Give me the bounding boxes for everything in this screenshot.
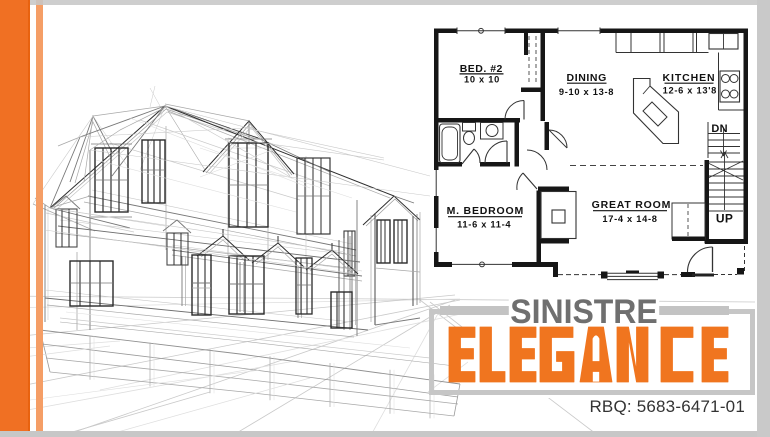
svg-text:DINING: DINING: [567, 72, 607, 84]
svg-text:17-4 x 14-8: 17-4 x 14-8: [602, 214, 657, 224]
svg-text:11-6 x 11-4: 11-6 x 11-4: [457, 220, 511, 230]
svg-text:GREAT ROOM: GREAT ROOM: [592, 199, 672, 211]
svg-text:12-6 x 13'8: 12-6 x 13'8: [663, 86, 717, 96]
svg-text:KITCHEN: KITCHEN: [663, 72, 716, 84]
svg-text:DN: DN: [711, 123, 728, 135]
svg-text:9-10 x 13-8: 9-10 x 13-8: [559, 87, 614, 97]
svg-text:UP: UP: [716, 212, 733, 226]
svg-text:M. BEDROOM: M. BEDROOM: [447, 205, 524, 217]
svg-text:10 x 10: 10 x 10: [464, 74, 500, 84]
